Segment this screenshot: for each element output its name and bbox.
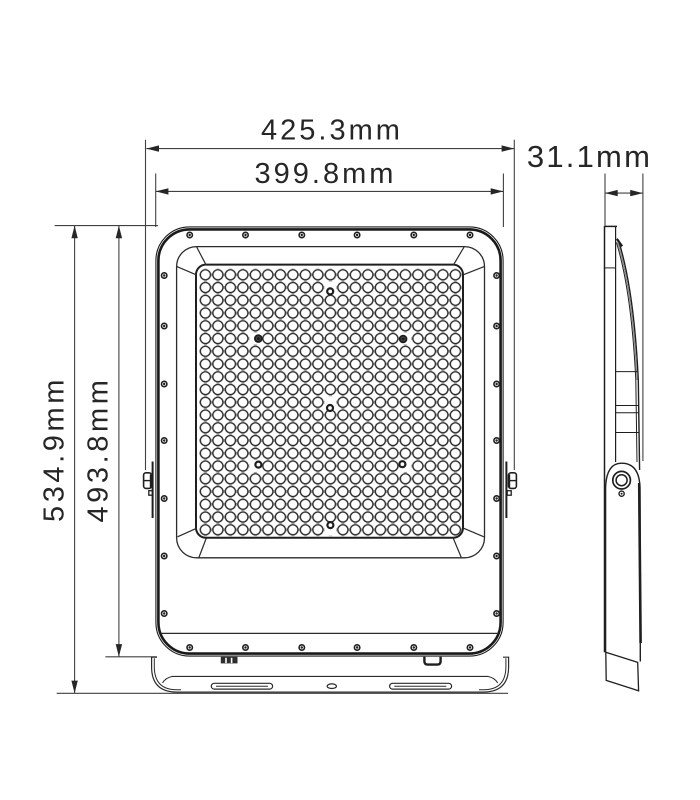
svg-text:493.8mm: 493.8mm	[82, 376, 114, 522]
svg-text:31.1mm: 31.1mm	[527, 139, 652, 174]
svg-text:399.8mm: 399.8mm	[255, 158, 397, 190]
svg-text:534.9mm: 534.9mm	[38, 376, 70, 522]
svg-text:425.3mm: 425.3mm	[261, 114, 403, 146]
